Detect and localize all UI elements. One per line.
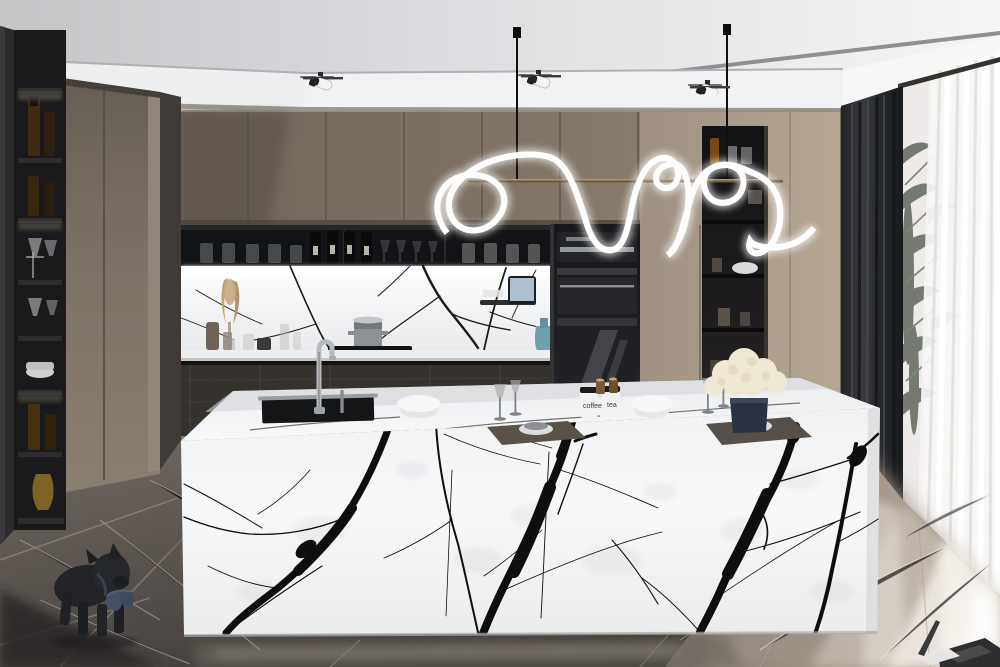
svg-text:tea: tea [607, 402, 617, 409]
svg-text:coffee: coffee [583, 403, 602, 410]
